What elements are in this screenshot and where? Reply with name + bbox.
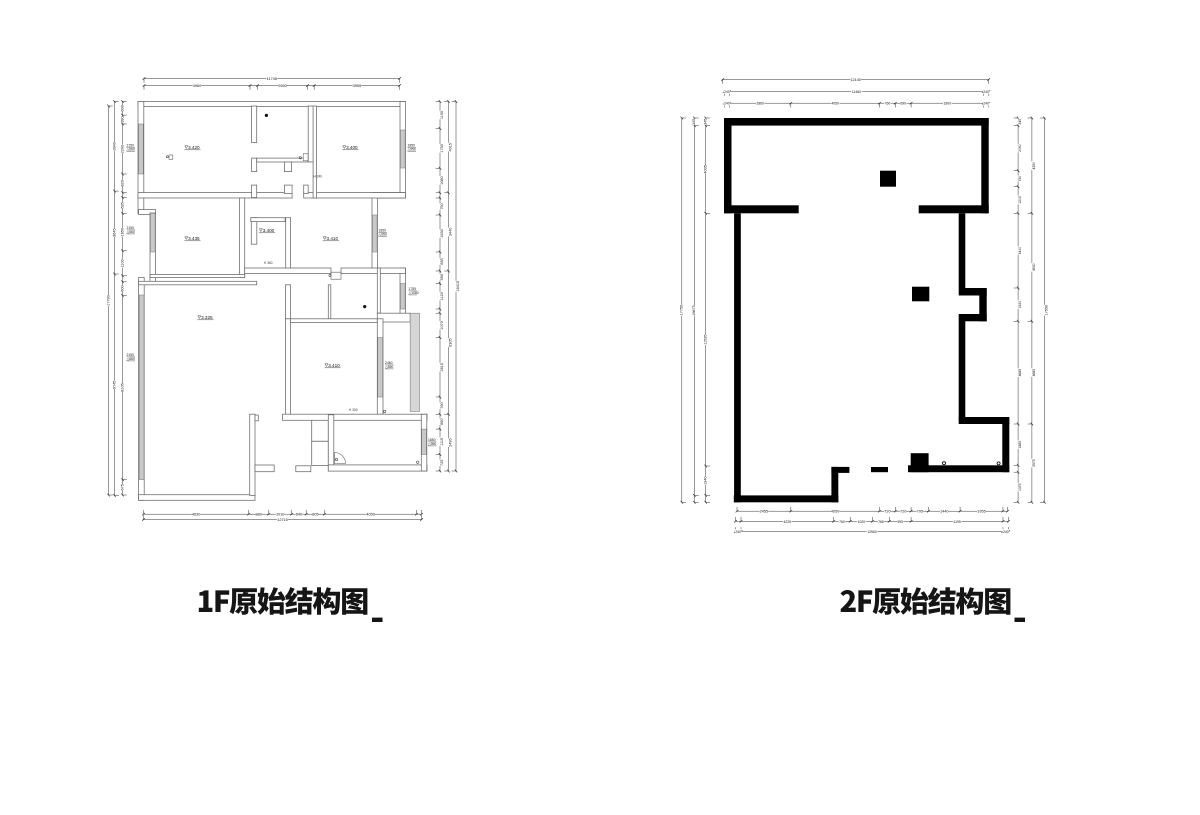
svg-text:795: 795	[917, 510, 923, 514]
svg-text:4685: 4685	[1032, 369, 1036, 377]
svg-text:4005: 4005	[704, 165, 708, 173]
svg-text:1120: 1120	[440, 292, 444, 300]
svg-text:240: 240	[983, 102, 989, 106]
svg-text:1375: 1375	[1018, 483, 1022, 491]
svg-text:4930: 4930	[1032, 263, 1036, 271]
svg-text:1340: 1340	[704, 476, 708, 484]
svg-text:1020: 1020	[858, 520, 866, 524]
svg-text:4195: 4195	[953, 520, 961, 524]
svg-text:3.420: 3.420	[188, 145, 200, 150]
svg-text:11535: 11535	[704, 334, 708, 344]
svg-text:240: 240	[983, 90, 989, 94]
svg-text:675: 675	[120, 484, 124, 490]
svg-text:4350: 4350	[1032, 162, 1036, 170]
svg-text:720: 720	[900, 510, 906, 514]
svg-text:695: 695	[120, 202, 124, 208]
svg-text:4960: 4960	[193, 84, 201, 88]
svg-text:3.410: 3.410	[327, 236, 339, 241]
svg-text:16415: 16415	[456, 281, 460, 292]
svg-text:3410: 3410	[1018, 247, 1022, 255]
svg-text:650: 650	[440, 419, 444, 425]
svg-text:760: 760	[839, 520, 845, 524]
svg-text:3955: 3955	[353, 84, 361, 88]
svg-text:390: 390	[120, 116, 124, 122]
svg-text:11460: 11460	[852, 90, 861, 94]
svg-text:1010: 1010	[276, 513, 284, 517]
svg-text:730: 730	[1018, 176, 1022, 182]
svg-text:2860: 2860	[756, 102, 764, 106]
svg-text:△660: △660	[127, 357, 135, 361]
svg-text:1520: 1520	[1018, 301, 1022, 309]
svg-text:△950: △950	[428, 442, 436, 446]
svg-text:2615: 2615	[440, 363, 444, 371]
svg-text:4050: 4050	[366, 513, 374, 517]
svg-text:△660: △660	[127, 230, 135, 234]
svg-text:4630: 4630	[192, 513, 200, 517]
svg-text:1955: 1955	[977, 510, 985, 514]
svg-text:3940: 3940	[112, 142, 116, 150]
svg-text:16875: 16875	[692, 305, 696, 316]
svg-text:9745: 9745	[112, 381, 116, 389]
svg-text:17790: 17790	[106, 295, 110, 306]
svg-text:345: 345	[1018, 119, 1022, 125]
svg-text:2200: 2200	[120, 145, 124, 153]
svg-text:3.410: 3.410	[328, 363, 340, 368]
svg-text:H 240: H 240	[314, 175, 323, 179]
svg-text:880: 880	[256, 513, 262, 517]
svg-text:600: 600	[120, 105, 124, 111]
svg-text:1750: 1750	[440, 144, 444, 152]
svg-text:3.325: 3.325	[201, 315, 213, 320]
svg-text:△950: △950	[379, 233, 387, 237]
svg-text:240: 240	[724, 90, 730, 94]
svg-text:△650: △650	[385, 365, 393, 369]
svg-text:3440: 3440	[449, 228, 453, 236]
svg-text:1885: 1885	[1018, 441, 1022, 449]
svg-text:2060: 2060	[1018, 144, 1022, 152]
svg-text:4225: 4225	[784, 520, 792, 524]
svg-text:△1080: △1080	[409, 291, 419, 295]
svg-text:345: 345	[692, 119, 696, 125]
svg-text:2495: 2495	[449, 438, 453, 446]
svg-text:△950: △950	[408, 148, 416, 152]
svg-text:725: 725	[440, 460, 444, 466]
svg-text:720: 720	[884, 510, 890, 514]
svg-text:765: 765	[878, 520, 884, 524]
svg-text:12140: 12140	[850, 78, 861, 82]
svg-text:1080: 1080	[440, 176, 444, 184]
svg-text:1650: 1650	[120, 228, 124, 236]
svg-text:345: 345	[704, 119, 708, 125]
svg-text:760: 760	[440, 402, 444, 408]
svg-text:690: 690	[900, 102, 906, 106]
svg-text:4015: 4015	[449, 143, 453, 151]
svg-text:750: 750	[440, 203, 444, 209]
svg-text:820: 820	[120, 180, 124, 186]
svg-text:835: 835	[440, 258, 444, 264]
svg-text:4685: 4685	[1018, 369, 1022, 377]
svg-text:H 360: H 360	[264, 261, 273, 265]
svg-text:760: 760	[885, 102, 891, 106]
svg-text:3.400: 3.400	[346, 145, 358, 150]
svg-text:995: 995	[897, 520, 903, 524]
svg-text:8105: 8105	[120, 383, 124, 391]
svg-text:6305: 6305	[449, 338, 453, 346]
svg-text:805: 805	[312, 513, 318, 517]
svg-text:550: 550	[440, 274, 444, 280]
svg-text:3645: 3645	[112, 228, 116, 236]
svg-text:12715: 12715	[277, 518, 288, 522]
svg-text:240: 240	[724, 102, 730, 106]
svg-text:1115: 1115	[440, 438, 444, 446]
svg-text:17590: 17590	[1045, 305, 1049, 316]
svg-text:240: 240	[1003, 530, 1009, 534]
svg-text:2550: 2550	[278, 84, 286, 88]
svg-text:1440: 1440	[940, 510, 948, 514]
svg-text:3300: 3300	[944, 102, 952, 106]
svg-text:1100: 1100	[120, 259, 124, 267]
svg-text:1190: 1190	[440, 111, 444, 119]
svg-text:1630: 1630	[440, 229, 444, 237]
svg-text:12560: 12560	[867, 530, 877, 534]
svg-text:△660: △660	[127, 148, 135, 152]
svg-text:H 300: H 300	[349, 408, 358, 412]
svg-text:3.400: 3.400	[263, 228, 275, 233]
svg-text:1070: 1070	[440, 321, 444, 329]
svg-text:1215: 1215	[1018, 196, 1022, 204]
svg-text:4050: 4050	[831, 510, 839, 514]
svg-text:600: 600	[120, 285, 124, 291]
svg-text:4050: 4050	[831, 102, 839, 106]
svg-text:2455: 2455	[760, 510, 768, 514]
svg-text:11745: 11745	[267, 77, 277, 81]
svg-text:3575: 3575	[1032, 459, 1036, 467]
svg-text:640: 640	[296, 513, 302, 517]
svg-text:17750: 17750	[680, 305, 684, 316]
svg-text:3.435: 3.435	[188, 236, 200, 241]
svg-text:240: 240	[735, 530, 741, 534]
